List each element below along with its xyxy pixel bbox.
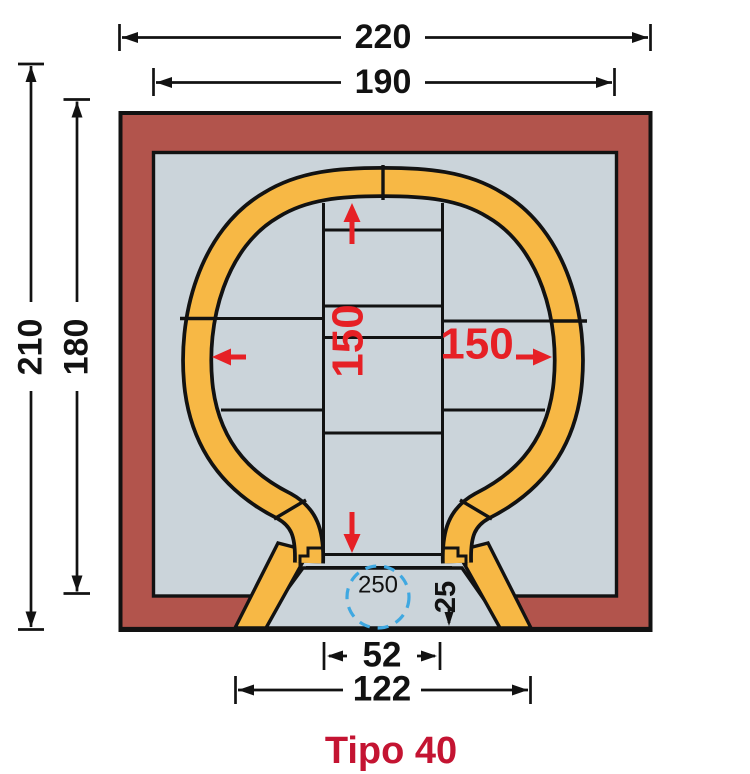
hearth-diameter-label: 250: [358, 572, 398, 599]
kiln-type-drawing-page: 220 190 210 180 52: [0, 0, 750, 774]
total-height-label: 210: [12, 319, 50, 376]
inner-height-label: 180: [58, 319, 96, 376]
hearth-depth-label: 25: [430, 581, 462, 613]
dome-height-label: 150: [324, 304, 373, 377]
inner-chamber: [154, 153, 617, 597]
dome-width-label: 150: [440, 320, 513, 369]
base-width-label: 122: [353, 670, 411, 709]
total-width-label: 220: [355, 18, 412, 56]
model-title: Tipo 40: [325, 730, 457, 772]
inner-width-label: 190: [355, 63, 412, 101]
kiln-cross-section-diagram: 220 190 210 180 52: [0, 0, 750, 774]
